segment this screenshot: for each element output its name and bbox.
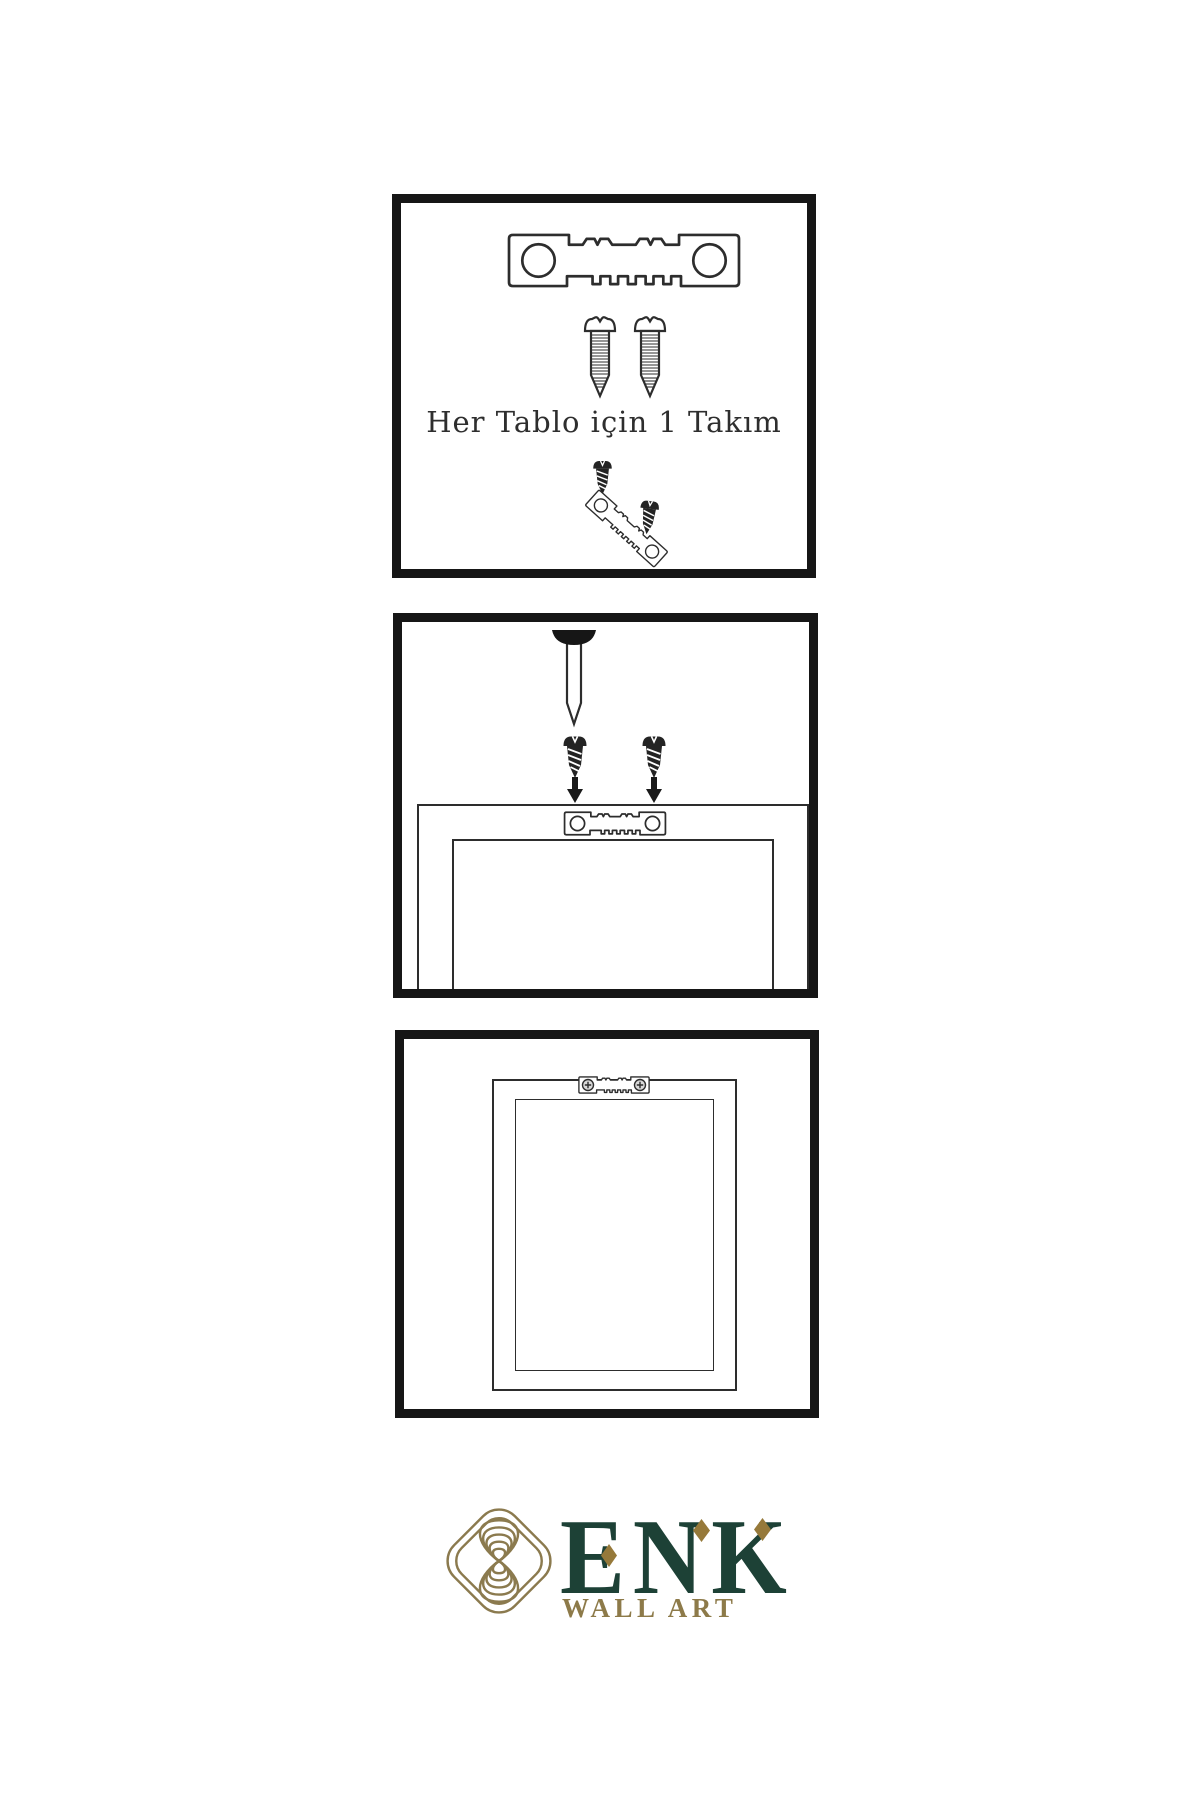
- arrow-down-icon: [567, 777, 583, 803]
- sawtooth-hanger-icon: [506, 232, 742, 289]
- infographic-canvas: Her Tablo için 1 Takım: [0, 0, 1200, 1800]
- panel-mounting-step: [393, 613, 818, 998]
- screw-icon: [632, 315, 668, 401]
- nail-icon: [552, 630, 596, 728]
- phillips-screw-icon: [635, 1080, 646, 1091]
- sawtooth-hanger-icon: [578, 1076, 650, 1096]
- brand-tagline: WALL ART: [562, 1593, 737, 1624]
- screw-icon: [582, 315, 618, 401]
- arrow-down-icon: [646, 777, 662, 803]
- screw-icon: [636, 498, 661, 537]
- brand-logo: ENK WALL ART: [420, 1480, 820, 1650]
- kit-caption: Her Tablo için 1 Takım: [401, 405, 807, 439]
- sawtooth-hanger-icon: [563, 811, 667, 836]
- screw-icon: [562, 734, 588, 780]
- panel-hardware-kit: Her Tablo için 1 Takım: [392, 194, 816, 578]
- knot-icon: [438, 1495, 560, 1627]
- panel-hanging-step: [395, 1030, 819, 1418]
- frame-back-inner: [452, 839, 774, 998]
- frame-back-inner: [515, 1099, 714, 1371]
- screw-icon: [641, 734, 667, 780]
- phillips-screw-icon: [583, 1080, 594, 1091]
